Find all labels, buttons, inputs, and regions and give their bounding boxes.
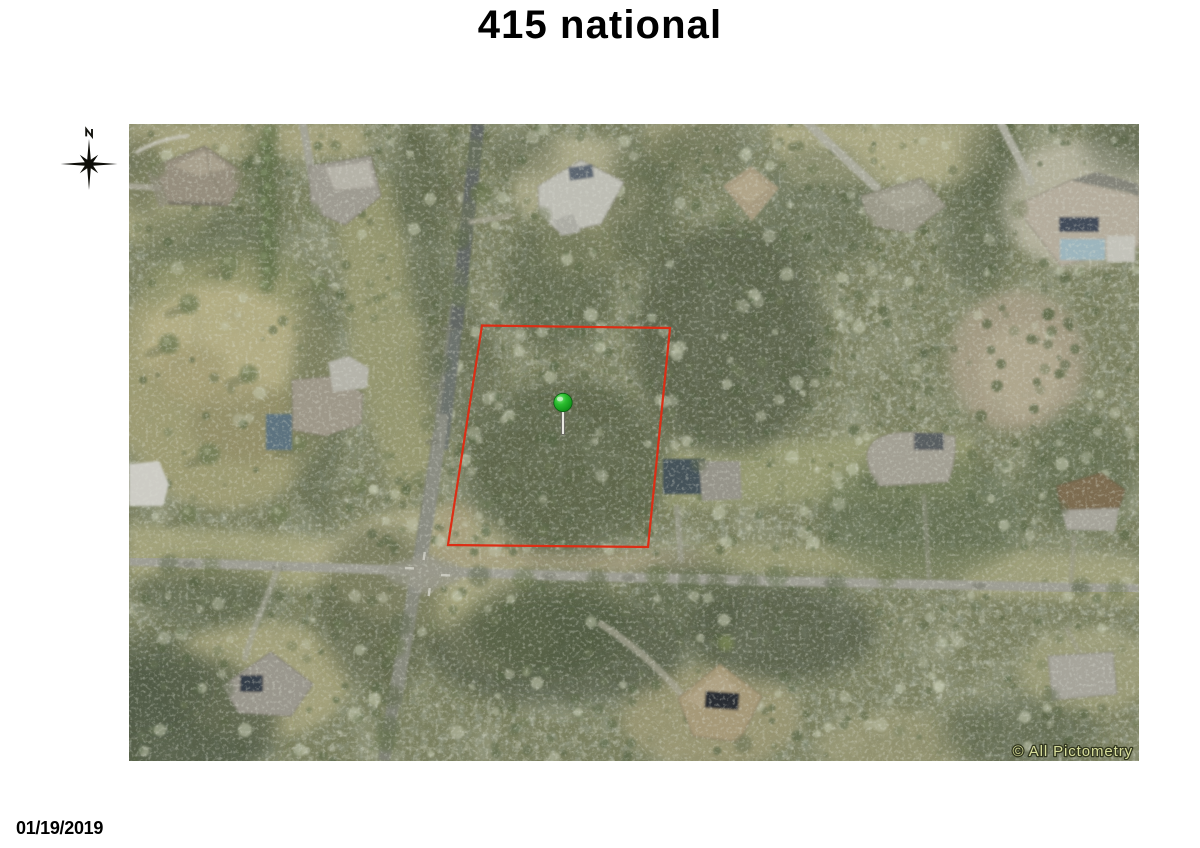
svg-text:© All Pictometry: © All Pictometry xyxy=(1013,743,1133,760)
